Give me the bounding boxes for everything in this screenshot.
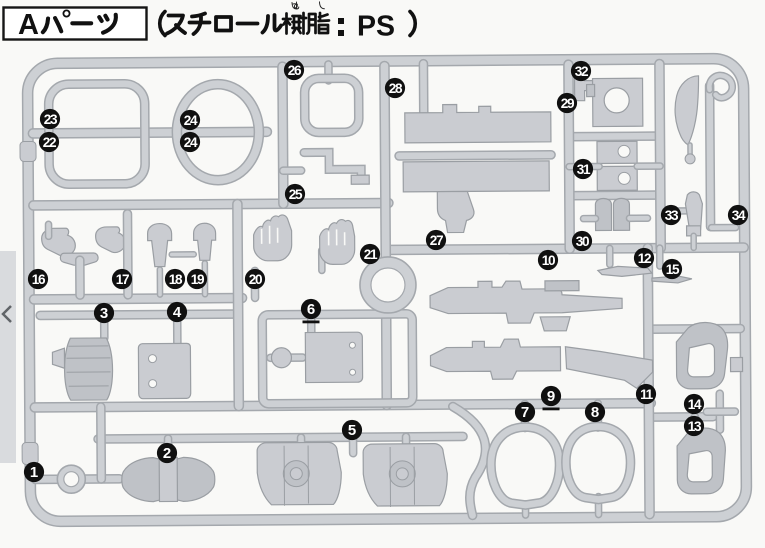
svg-text:11: 11 (640, 387, 654, 402)
svg-text:12: 12 (638, 251, 652, 266)
svg-text:22: 22 (43, 135, 57, 150)
svg-text:26: 26 (288, 63, 302, 78)
svg-text:27: 27 (430, 233, 443, 248)
svg-text:20: 20 (249, 272, 262, 287)
svg-text:29: 29 (561, 96, 575, 111)
svg-text:33: 33 (665, 208, 679, 223)
svg-text:30: 30 (576, 234, 589, 249)
svg-text:34: 34 (732, 208, 746, 223)
svg-text:28: 28 (389, 81, 403, 96)
svg-text:23: 23 (44, 112, 58, 127)
svg-text:15: 15 (666, 262, 680, 277)
svg-text:13: 13 (688, 419, 702, 434)
svg-text:10: 10 (542, 253, 555, 268)
svg-text:14: 14 (688, 397, 702, 412)
svg-text:18: 18 (169, 272, 183, 287)
svg-text:16: 16 (32, 272, 46, 287)
svg-text:4: 4 (173, 304, 182, 321)
svg-text:PS: PS (357, 11, 395, 43)
svg-text:24: 24 (184, 135, 198, 150)
svg-text:25: 25 (289, 187, 303, 202)
svg-text:1: 1 (30, 464, 38, 481)
svg-text:21: 21 (364, 247, 378, 262)
svg-text:24: 24 (184, 113, 198, 128)
svg-text:6: 6 (307, 301, 315, 318)
svg-text:5: 5 (348, 422, 356, 439)
svg-text:32: 32 (575, 64, 589, 79)
svg-text:17: 17 (116, 272, 129, 287)
svg-text:19: 19 (191, 272, 205, 287)
svg-text:8: 8 (591, 404, 599, 421)
svg-text:9: 9 (547, 388, 555, 405)
svg-text:31: 31 (577, 162, 591, 177)
svg-text:3: 3 (100, 305, 108, 322)
svg-text:7: 7 (521, 404, 529, 421)
svg-text:A: A (18, 9, 39, 41)
svg-text:2: 2 (163, 445, 171, 462)
